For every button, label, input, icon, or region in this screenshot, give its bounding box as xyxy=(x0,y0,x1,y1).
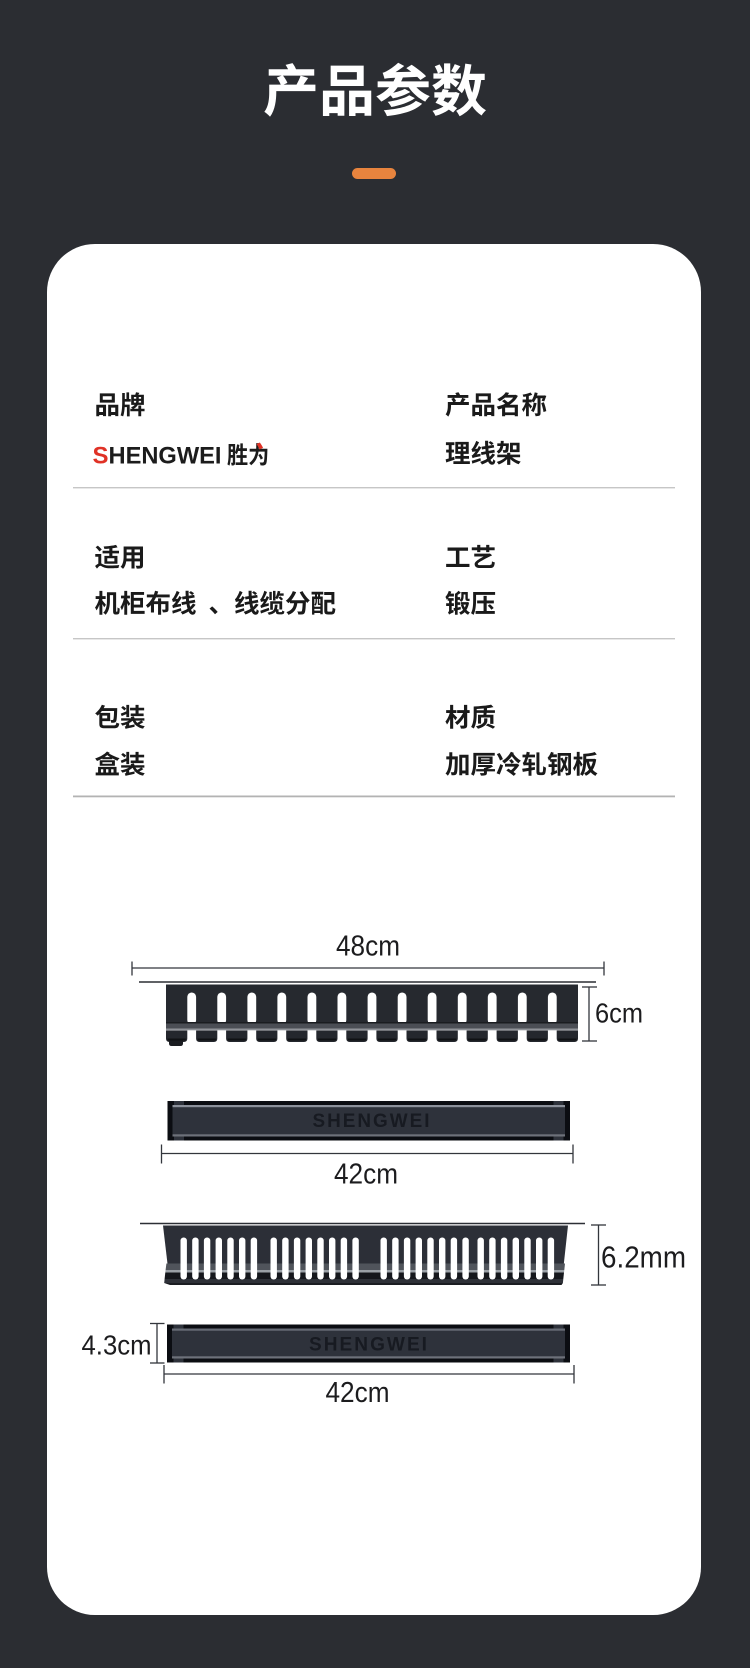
svg-text:42cm: 42cm xyxy=(326,1377,390,1409)
svg-text:4.3cm: 4.3cm xyxy=(82,1330,152,1361)
svg-text:6cm: 6cm xyxy=(595,998,643,1029)
svg-text:6.2mm: 6.2mm xyxy=(601,1240,686,1275)
svg-text:HENGWEI: HENGWEI xyxy=(109,443,222,470)
svg-text:48cm: 48cm xyxy=(336,931,400,963)
svg-text:SHENGWEI: SHENGWEI xyxy=(309,1335,429,1356)
svg-text:SHENGWEI: SHENGWEI xyxy=(313,1111,432,1132)
svg-text:S: S xyxy=(93,443,109,470)
svg-text:42cm: 42cm xyxy=(334,1159,398,1191)
